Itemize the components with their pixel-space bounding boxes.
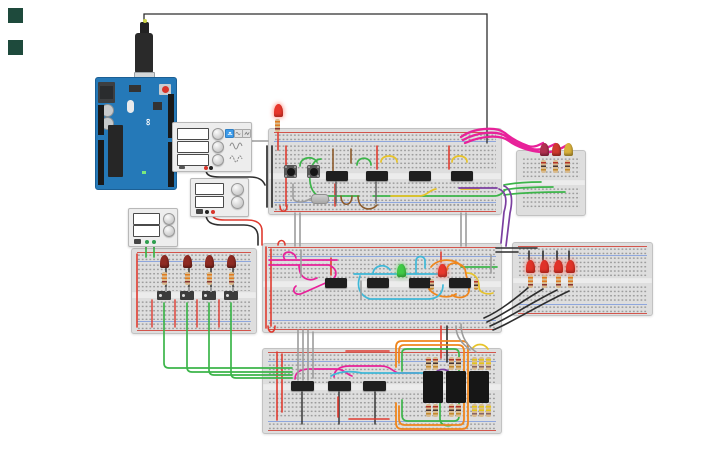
uno-label bbox=[135, 127, 145, 145]
reset-button-cap[interactable] bbox=[162, 86, 169, 93]
led-red[interactable] bbox=[183, 255, 192, 268]
resistor[interactable] bbox=[528, 275, 533, 288]
terminal-strip[interactable] bbox=[137, 300, 251, 320]
psu-negative-terminal[interactable] bbox=[205, 210, 209, 214]
psu-positive-terminal[interactable] bbox=[211, 210, 215, 214]
resistor[interactable] bbox=[456, 404, 461, 417]
led-red[interactable] bbox=[566, 260, 575, 273]
power-indicator bbox=[179, 166, 185, 169]
led-crimson[interactable] bbox=[540, 143, 549, 156]
decor-square bbox=[8, 8, 23, 23]
power-rail[interactable] bbox=[268, 320, 496, 330]
resistor[interactable] bbox=[479, 404, 484, 417]
ic-chip[interactable] bbox=[451, 171, 473, 181]
resistor[interactable] bbox=[568, 275, 573, 288]
resistor[interactable] bbox=[486, 404, 491, 417]
slide-switch[interactable] bbox=[180, 291, 194, 300]
resistor[interactable] bbox=[486, 357, 491, 370]
ic-chip[interactable] bbox=[363, 381, 386, 391]
resistor[interactable] bbox=[229, 272, 234, 285]
pin-header[interactable] bbox=[98, 140, 104, 185]
switch-lever[interactable] bbox=[188, 287, 190, 292]
center-channel bbox=[513, 277, 652, 283]
terminal-strip[interactable] bbox=[522, 187, 580, 209]
psu-voltage-display bbox=[195, 183, 224, 195]
psu2-current-display bbox=[133, 225, 160, 237]
fg-amplitude-knob[interactable] bbox=[212, 141, 224, 153]
resistor[interactable] bbox=[426, 404, 431, 417]
square-wave-icon bbox=[227, 131, 233, 136]
push-button[interactable] bbox=[284, 165, 297, 178]
power-rail[interactable] bbox=[274, 132, 496, 142]
resistor[interactable] bbox=[479, 357, 484, 370]
power-switch[interactable] bbox=[134, 239, 141, 244]
seven-segment-display[interactable] bbox=[469, 371, 489, 403]
led-red[interactable] bbox=[554, 260, 563, 273]
resistor[interactable] bbox=[433, 357, 438, 370]
breadboard-bottom[interactable] bbox=[262, 348, 502, 434]
resistor[interactable] bbox=[275, 119, 280, 132]
wire bbox=[212, 213, 262, 245]
resistor[interactable] bbox=[426, 357, 431, 370]
resistor[interactable] bbox=[556, 275, 561, 288]
led-red[interactable] bbox=[205, 255, 214, 268]
terminal-strip[interactable] bbox=[522, 157, 580, 179]
sine-curve-icon bbox=[229, 154, 245, 163]
led-red[interactable] bbox=[540, 260, 549, 273]
resistor[interactable] bbox=[553, 160, 558, 173]
wire bbox=[206, 214, 258, 245]
fg-frequency-knob[interactable] bbox=[212, 128, 224, 140]
resistor[interactable] bbox=[162, 272, 167, 285]
ic-chip[interactable] bbox=[326, 171, 348, 181]
switch-lever[interactable] bbox=[165, 287, 167, 292]
resistor[interactable] bbox=[474, 279, 478, 290]
switch-lever[interactable] bbox=[210, 287, 212, 292]
fg-offset-knob[interactable] bbox=[212, 154, 224, 166]
breadboard-right[interactable] bbox=[512, 242, 653, 316]
microcontroller-dip-chip bbox=[108, 125, 123, 177]
voltage-regulator bbox=[129, 85, 141, 92]
psu2-terminal[interactable] bbox=[152, 240, 156, 244]
resistor[interactable] bbox=[541, 160, 546, 173]
ic-chip[interactable] bbox=[366, 171, 388, 181]
led-red[interactable] bbox=[552, 143, 561, 156]
function-generator[interactable] bbox=[172, 122, 252, 172]
ic-chip[interactable] bbox=[409, 278, 431, 288]
power-led bbox=[142, 171, 146, 174]
psu2-current-knob[interactable] bbox=[163, 225, 175, 237]
fg-offset-display bbox=[177, 154, 209, 166]
ic-chip[interactable] bbox=[449, 278, 471, 288]
resistor[interactable] bbox=[472, 357, 477, 370]
psu2-voltage-display bbox=[133, 213, 160, 225]
power-rail[interactable] bbox=[137, 321, 251, 331]
resistor[interactable] bbox=[207, 272, 212, 285]
power-rail[interactable] bbox=[268, 352, 496, 362]
breadboard-small-right[interactable] bbox=[516, 150, 586, 216]
led-red[interactable] bbox=[227, 255, 236, 268]
resistor[interactable] bbox=[433, 404, 438, 417]
capacitor-horizontal[interactable] bbox=[311, 194, 329, 204]
led-red[interactable] bbox=[438, 264, 447, 277]
fg-negative-terminal[interactable] bbox=[209, 166, 213, 170]
wire bbox=[504, 186, 512, 246]
pin-header[interactable] bbox=[98, 105, 104, 135]
ic-chip[interactable] bbox=[367, 278, 389, 288]
power-switch[interactable] bbox=[196, 209, 203, 214]
triangle-wave-icon bbox=[244, 131, 250, 136]
ic-chip[interactable] bbox=[328, 381, 351, 391]
center-channel bbox=[517, 179, 585, 185]
push-button[interactable] bbox=[307, 165, 320, 178]
resistor[interactable] bbox=[472, 404, 477, 417]
slide-switch[interactable] bbox=[202, 291, 216, 300]
power-rail[interactable] bbox=[268, 247, 496, 257]
resistor[interactable] bbox=[542, 275, 547, 288]
waveform-triangle-button[interactable] bbox=[242, 129, 251, 138]
ic-chip[interactable] bbox=[291, 381, 314, 391]
psu2-terminal[interactable] bbox=[145, 240, 149, 244]
resistor[interactable] bbox=[185, 272, 190, 285]
breadboard-left[interactable] bbox=[131, 248, 257, 334]
slide-switch[interactable] bbox=[224, 291, 238, 300]
seven-segment-display[interactable] bbox=[423, 371, 443, 403]
psu-current-display bbox=[195, 196, 224, 208]
usb-cable-plug[interactable] bbox=[135, 33, 153, 74]
fg-positive-terminal[interactable] bbox=[204, 166, 208, 170]
ic-chip[interactable] bbox=[409, 171, 431, 181]
terminal-strip[interactable] bbox=[268, 258, 496, 280]
sine-curve-icon bbox=[229, 141, 245, 150]
psu2-voltage-knob[interactable] bbox=[163, 213, 175, 225]
power-rail[interactable] bbox=[518, 304, 647, 314]
fg-amplitude-display bbox=[177, 141, 209, 153]
arduino-uno-board[interactable]: ∞ bbox=[95, 77, 177, 190]
crystal-oscillator bbox=[127, 100, 134, 113]
sine-wave-icon bbox=[235, 131, 241, 136]
terminal-strip[interactable] bbox=[518, 256, 647, 277]
seven-segment-display[interactable] bbox=[446, 371, 466, 403]
icsp-header bbox=[153, 102, 162, 110]
led-yellow[interactable] bbox=[564, 143, 573, 156]
power-supply-aux[interactable] bbox=[128, 208, 178, 247]
power-supply-main[interactable] bbox=[190, 178, 249, 217]
terminal-strip[interactable] bbox=[268, 289, 496, 315]
power-rail[interactable] bbox=[518, 246, 647, 256]
psu-voltage-knob[interactable] bbox=[231, 183, 244, 196]
fg-frequency-display bbox=[177, 128, 209, 140]
terminal-strip[interactable] bbox=[518, 285, 647, 303]
usb-cable-dot bbox=[143, 19, 147, 23]
led-red[interactable] bbox=[274, 104, 283, 117]
led-red[interactable] bbox=[526, 260, 535, 273]
resistor[interactable] bbox=[449, 404, 454, 417]
led-green[interactable] bbox=[397, 264, 406, 277]
resistor[interactable] bbox=[456, 357, 461, 370]
led-red[interactable] bbox=[160, 255, 169, 268]
power-rail[interactable] bbox=[268, 421, 496, 431]
breadboard-middle[interactable] bbox=[262, 243, 502, 333]
infinity-icon: ∞ bbox=[145, 118, 153, 125]
power-rail[interactable] bbox=[274, 202, 496, 212]
circuit-canvas: ∞ bbox=[0, 0, 725, 453]
psu-current-knob[interactable] bbox=[231, 196, 244, 209]
resistor[interactable] bbox=[430, 279, 434, 290]
ic-chip[interactable] bbox=[325, 278, 347, 288]
slide-switch[interactable] bbox=[157, 291, 171, 300]
resistor[interactable] bbox=[449, 357, 454, 370]
switch-lever[interactable] bbox=[232, 287, 234, 292]
decor-square bbox=[8, 40, 23, 55]
barrel-jack-hole bbox=[100, 86, 113, 99]
resistor[interactable] bbox=[565, 160, 570, 173]
waveform-square-button[interactable] bbox=[225, 129, 234, 138]
